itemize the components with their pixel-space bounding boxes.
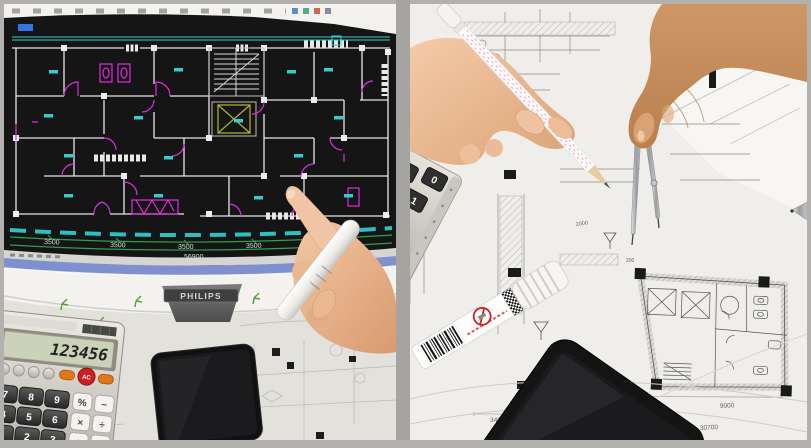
left-photo-scene: 3500 3500 3500 3500 7800 56900 PHILIPS	[4, 4, 396, 440]
left-photo-panel: 3500 3500 3500 3500 7800 56900 PHILIPS	[4, 4, 396, 440]
dim-9000: 9000	[720, 402, 735, 410]
calculator: 123456 AC 7 8 9 4 5 6	[4, 310, 125, 440]
dim-200: 200	[626, 258, 635, 264]
orange-key	[98, 374, 114, 385]
knuckle-highlight	[662, 105, 674, 123]
frame-bottom	[0, 440, 811, 448]
photo-frame: 3500 3500 3500 3500 7800 56900 PHILIPS	[0, 0, 811, 448]
hatched-wall-band	[465, 22, 615, 35]
thumbnail	[638, 131, 645, 142]
philips-logo: PHILIPS	[180, 291, 221, 301]
dim-label: 3500	[246, 243, 262, 250]
layer-indicator	[18, 24, 33, 31]
dim-label: 3500	[44, 239, 60, 247]
ac-key-label: AC	[82, 375, 92, 382]
key-percent: %	[77, 397, 87, 409]
panel-divider	[396, 0, 410, 448]
monitor-stand: PHILIPS	[162, 284, 242, 322]
dim-label: 3500	[178, 244, 194, 251]
knuckle	[485, 139, 503, 157]
dim-30700: 30700	[700, 424, 719, 432]
compass-joint	[651, 180, 657, 186]
digit-keys: 7 8 9 4 5 6 1 2 3 0 00 ·	[4, 384, 70, 440]
right-photo-scene: 2000 200 3400 9000 30700	[410, 4, 807, 440]
right-photo-panel: 2000 200 3400 9000 30700	[410, 4, 807, 440]
dim-label: 3500	[110, 242, 126, 249]
knuckle	[460, 144, 480, 164]
orange-key	[59, 370, 75, 381]
hatched-wall-band	[560, 254, 618, 265]
smartphone	[150, 343, 264, 440]
